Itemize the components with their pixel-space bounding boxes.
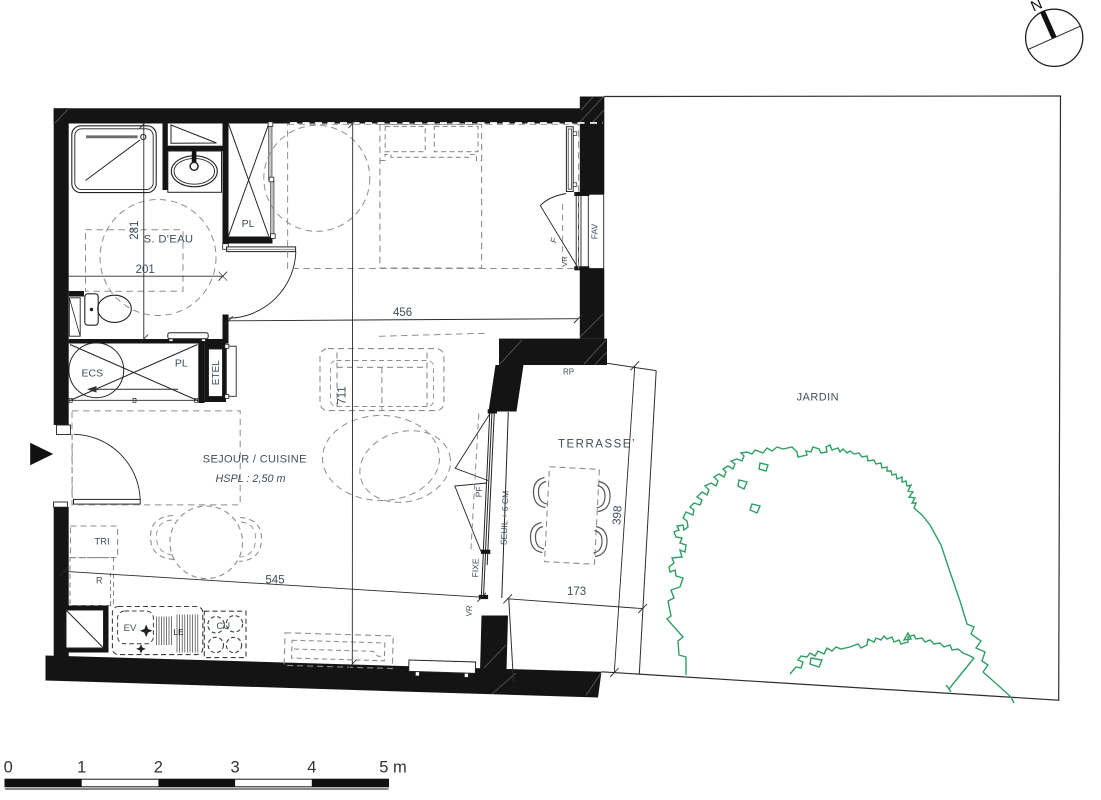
svg-text:0: 0	[4, 759, 13, 777]
svg-text:ETEL: ETEL	[211, 360, 222, 385]
svg-text:FAV: FAV	[589, 223, 599, 239]
svg-text:HSPL : 2,50 m: HSPL : 2,50 m	[215, 473, 285, 485]
svg-text:EV: EV	[124, 623, 137, 634]
svg-text:173: 173	[567, 586, 586, 598]
svg-text:LE: LE	[173, 627, 184, 637]
svg-text:PL: PL	[175, 358, 188, 370]
svg-text:5 m: 5 m	[379, 759, 407, 777]
svg-text:545: 545	[265, 575, 284, 587]
svg-text:PL: PL	[242, 218, 255, 230]
svg-text:398: 398	[611, 505, 624, 525]
svg-text:TRI: TRI	[94, 537, 109, 548]
svg-text:201: 201	[136, 264, 155, 276]
svg-text:2: 2	[154, 759, 163, 777]
svg-text:PF: PF	[474, 486, 484, 497]
svg-text:S. D'EAU: S. D'EAU	[144, 234, 194, 246]
svg-text:R: R	[96, 576, 103, 586]
svg-text:TERRASSE’: TERRASSE’	[558, 439, 636, 451]
svg-text:456: 456	[393, 307, 412, 319]
svg-text:281: 281	[129, 221, 141, 240]
svg-text:711: 711	[336, 386, 348, 404]
svg-text:SEUIL + 6 CM: SEUIL + 6 CM	[499, 491, 511, 546]
svg-text:JARDIN: JARDIN	[797, 392, 839, 404]
svg-text:VR: VR	[465, 605, 474, 617]
svg-text:VR: VR	[560, 256, 569, 267]
svg-text:3: 3	[231, 759, 240, 777]
svg-text:SEJOUR / CUISINE: SEJOUR / CUISINE	[203, 453, 307, 465]
svg-text:FIXE: FIXE	[470, 558, 481, 578]
svg-text:ECS: ECS	[82, 368, 104, 380]
svg-text:4: 4	[307, 759, 316, 777]
svg-text:CU: CU	[216, 621, 230, 632]
svg-text:1: 1	[77, 759, 86, 777]
svg-text:RP: RP	[563, 368, 574, 377]
